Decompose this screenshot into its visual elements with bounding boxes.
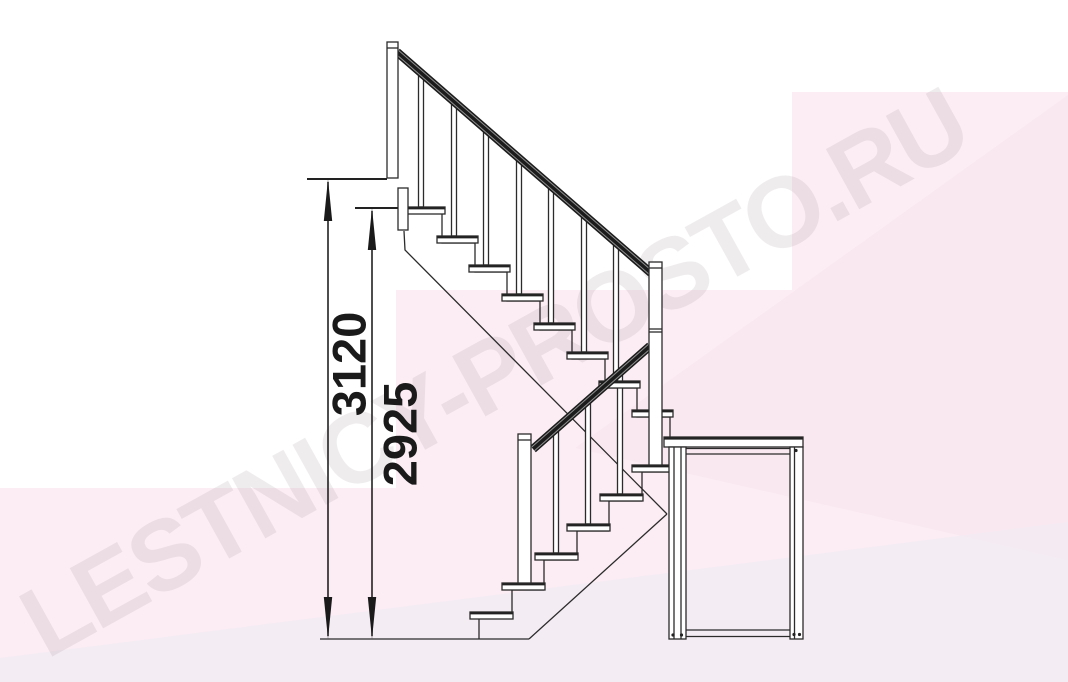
baluster [582,216,587,352]
tread [535,553,578,560]
lower-treads [470,465,675,619]
baluster [586,401,591,524]
dimension-3120-label: 3120 [323,312,376,417]
stair-drawing-canvas: LESTNICY-PROSTO.RU [0,0,1068,682]
tread [404,207,445,214]
arrowhead-up [324,179,332,221]
tread [502,583,545,590]
upper-handrail [396,50,653,274]
dimension-2925: 2925 [355,208,427,639]
landing-platform [664,437,803,639]
baluster [614,244,619,381]
baluster [419,74,424,207]
dimension-2925-label: 2925 [374,382,427,487]
upper-balusters [419,74,619,381]
arrowhead-up [368,208,376,250]
platform-left-leg [669,447,686,639]
central-newel-post [649,262,662,465]
platform-right-leg [790,447,803,639]
baluster [618,373,623,494]
baluster [484,130,489,265]
lower-handrail [532,344,652,450]
tread [502,294,543,301]
lower-newel-post [518,434,531,583]
arrowhead-down [324,597,332,639]
tread [534,323,575,330]
tread [470,612,513,619]
tread [567,524,610,531]
tread [567,352,608,359]
staircase-drawing: 3120 2925 [0,0,1068,682]
arrowhead-down [368,597,376,639]
baluster [452,103,457,236]
upper-treads [404,207,673,417]
upper-side-plate [398,188,408,230]
baluster [554,429,559,553]
baluster [549,187,554,323]
tread [437,236,478,243]
tread [469,265,510,272]
tread [600,494,643,501]
top-newel-post [387,42,398,178]
baluster [517,159,522,294]
